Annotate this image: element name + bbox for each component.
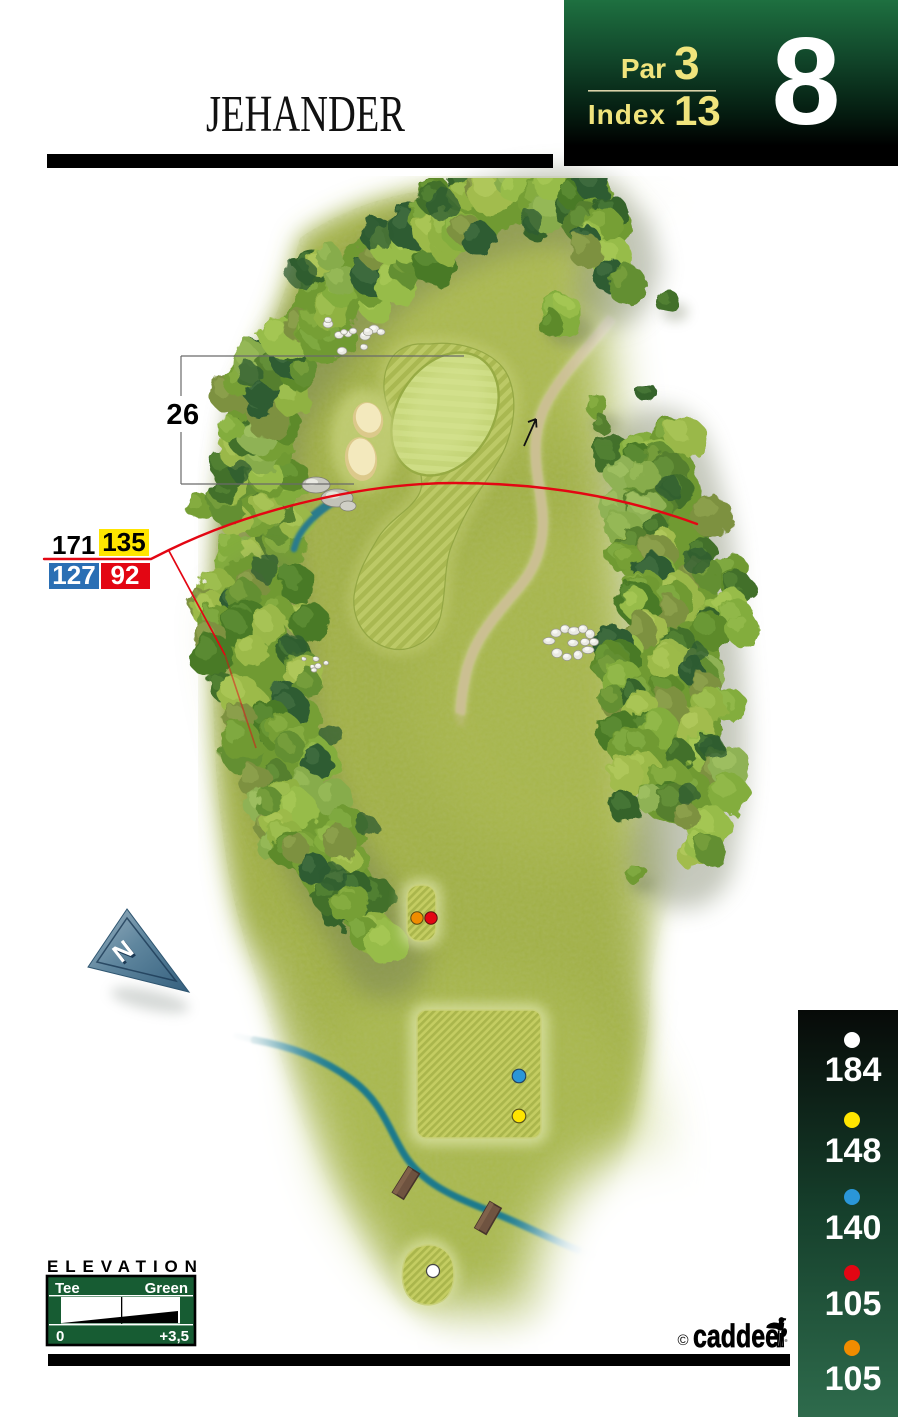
svg-text:105: 105 [825, 1285, 882, 1323]
svg-text:Par: Par [621, 53, 666, 84]
svg-text:26: 26 [166, 399, 199, 431]
svg-text:171: 171 [52, 530, 95, 560]
svg-text:8: 8 [772, 13, 841, 151]
svg-text:Tee: Tee [55, 1280, 80, 1297]
svg-text:+3,5: +3,5 [159, 1328, 189, 1345]
svg-text:0: 0 [56, 1328, 64, 1345]
svg-text:JEHANDER: JEHANDER [206, 86, 405, 143]
svg-text:140: 140 [825, 1209, 882, 1247]
svg-text:Index: Index [588, 99, 666, 130]
svg-text:caddee: caddee [693, 1318, 779, 1354]
svg-text:127: 127 [52, 560, 95, 590]
svg-text:92: 92 [111, 560, 140, 590]
svg-text:©: © [677, 1332, 688, 1349]
svg-text:105: 105 [825, 1360, 882, 1398]
svg-text:ELEVATION: ELEVATION [47, 1257, 204, 1276]
svg-text:Green: Green [145, 1280, 188, 1297]
svg-text:13: 13 [674, 87, 721, 134]
svg-text:148: 148 [825, 1132, 882, 1170]
svg-text:3: 3 [674, 37, 700, 89]
svg-text:135: 135 [102, 527, 145, 557]
svg-text:184: 184 [825, 1051, 882, 1089]
